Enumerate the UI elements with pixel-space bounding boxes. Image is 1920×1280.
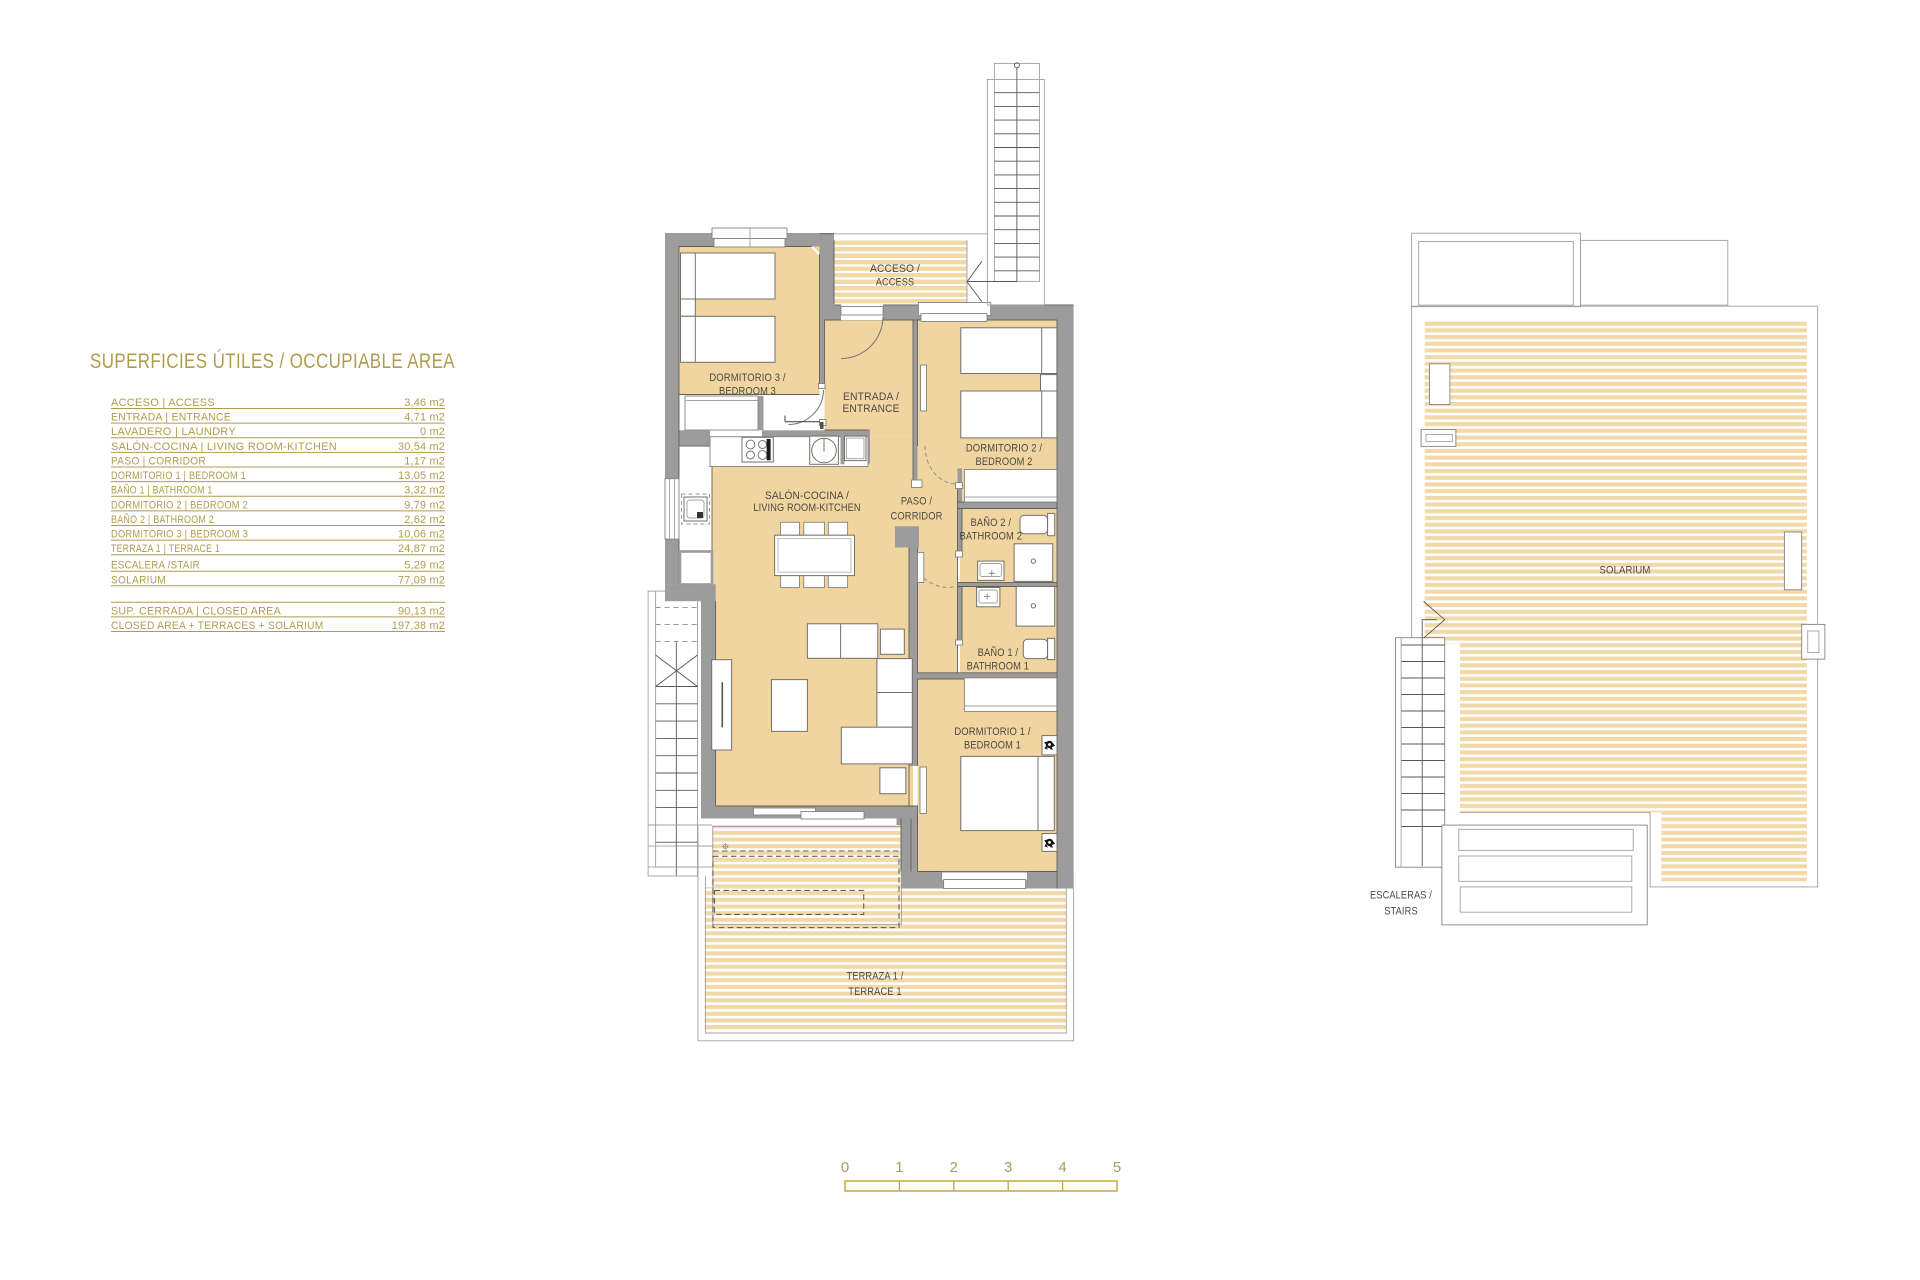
- svg-text:ACCESS: ACCESS: [876, 277, 915, 289]
- svg-text:SOLARIUM: SOLARIUM: [1600, 565, 1651, 577]
- svg-text:0: 0: [841, 1159, 849, 1176]
- svg-text:DORMITORIO 2 /: DORMITORIO 2 /: [966, 443, 1042, 455]
- svg-text:24,87 m2: 24,87 m2: [398, 543, 445, 555]
- svg-text:ENTRADA | ENTRANCE: ENTRADA | ENTRANCE: [111, 412, 231, 424]
- svg-text:10,06 m2: 10,06 m2: [398, 529, 445, 541]
- svg-text:4: 4: [1058, 1159, 1066, 1176]
- svg-text:SOLARIUM: SOLARIUM: [111, 574, 166, 586]
- svg-text:TERRACE 1: TERRACE 1: [848, 986, 902, 998]
- svg-text:9,79 m2: 9,79 m2: [404, 499, 445, 511]
- svg-text:BAÑO 2 /: BAÑO 2 /: [971, 516, 1012, 529]
- svg-text:4,71 m2: 4,71 m2: [404, 412, 445, 424]
- svg-text:LIVING ROOM-KITCHEN: LIVING ROOM-KITCHEN: [753, 502, 860, 514]
- svg-text:5: 5: [1113, 1159, 1121, 1176]
- svg-text:ENTRANCE: ENTRANCE: [843, 403, 900, 415]
- svg-text:BAÑO 1 | BATHROOM 1: BAÑO 1 | BATHROOM 1: [111, 484, 213, 497]
- svg-text:SUPERFICIES ÚTILES / OCCUPIABL: SUPERFICIES ÚTILES / OCCUPIABLE AREA: [90, 350, 455, 373]
- svg-text:SALÓN-COCINA /: SALÓN-COCINA /: [765, 489, 849, 502]
- svg-text:3,46 m2: 3,46 m2: [404, 397, 445, 409]
- svg-text:BATHROOM 2: BATHROOM 2: [960, 531, 1023, 543]
- svg-text:77,09 m2: 77,09 m2: [398, 574, 445, 586]
- svg-text:CLOSED AREA + TERRACES + SOLAR: CLOSED AREA + TERRACES + SOLARIUM: [111, 620, 324, 632]
- svg-text:BEDROOM 2: BEDROOM 2: [976, 456, 1033, 468]
- svg-text:LAVADERO | LAUNDRY: LAVADERO | LAUNDRY: [111, 426, 236, 438]
- svg-text:ACCESO /: ACCESO /: [870, 263, 920, 275]
- svg-text:DORMITORIO 1 | BEDROOM 1: DORMITORIO 1 | BEDROOM 1: [111, 470, 246, 482]
- svg-text:SUP. CERRADA | CLOSED AREA: SUP. CERRADA | CLOSED AREA: [111, 605, 281, 617]
- svg-text:3,32 m2: 3,32 m2: [404, 485, 445, 497]
- svg-text:PASO /: PASO /: [901, 496, 932, 508]
- svg-text:DORMITORIO 3 | BEDROOM 3: DORMITORIO 3 | BEDROOM 3: [111, 529, 248, 541]
- svg-text:BEDROOM 1: BEDROOM 1: [964, 740, 1021, 752]
- svg-text:5,29 m2: 5,29 m2: [404, 560, 445, 572]
- svg-text:2: 2: [950, 1159, 958, 1176]
- svg-text:BAÑO 2 | BATHROOM 2: BAÑO 2 | BATHROOM 2: [111, 513, 214, 526]
- svg-text:1: 1: [895, 1159, 903, 1176]
- svg-text:3: 3: [1004, 1159, 1012, 1176]
- svg-text:90,13 m2: 90,13 m2: [398, 605, 445, 617]
- svg-text:1,17 m2: 1,17 m2: [404, 456, 445, 468]
- svg-text:ESCALERAS /: ESCALERAS /: [1370, 890, 1432, 902]
- svg-text:ENTRADA /: ENTRADA /: [843, 391, 899, 403]
- svg-text:PASO | CORRIDOR: PASO | CORRIDOR: [111, 456, 206, 468]
- svg-text:DORMITORIO 3 /: DORMITORIO 3 /: [709, 372, 785, 384]
- svg-text:30,54 m2: 30,54 m2: [398, 441, 445, 453]
- svg-text:STAIRS: STAIRS: [1384, 906, 1418, 918]
- svg-text:SALÓN-COCINA | LIVING ROOM-KIT: SALÓN-COCINA | LIVING ROOM-KITCHEN: [111, 440, 337, 453]
- svg-text:ACCESO | ACCESS: ACCESO | ACCESS: [111, 397, 215, 409]
- svg-text:DORMITORIO 1 /: DORMITORIO 1 /: [954, 726, 1030, 738]
- svg-text:0 m2: 0 m2: [420, 426, 445, 438]
- svg-text:DORMITORIO 2 | BEDROOM 2: DORMITORIO 2 | BEDROOM 2: [111, 499, 248, 511]
- svg-text:BEDROOM 3: BEDROOM 3: [719, 386, 776, 398]
- svg-text:BAÑO 1 /: BAÑO 1 /: [978, 646, 1019, 659]
- svg-text:TERRAZA 1 | TERRACE 1: TERRAZA 1 | TERRACE 1: [111, 543, 220, 555]
- svg-text:13,05 m2: 13,05 m2: [398, 470, 445, 482]
- svg-text:ESCALERA /STAIR: ESCALERA /STAIR: [111, 560, 200, 572]
- svg-text:197,38 m2: 197,38 m2: [392, 620, 445, 632]
- svg-text:TERRAZA 1 /: TERRAZA 1 /: [847, 971, 904, 983]
- svg-text:CORRIDOR: CORRIDOR: [891, 511, 943, 523]
- svg-text:BATHROOM 1: BATHROOM 1: [967, 661, 1030, 673]
- svg-text:2,62 m2: 2,62 m2: [404, 514, 445, 526]
